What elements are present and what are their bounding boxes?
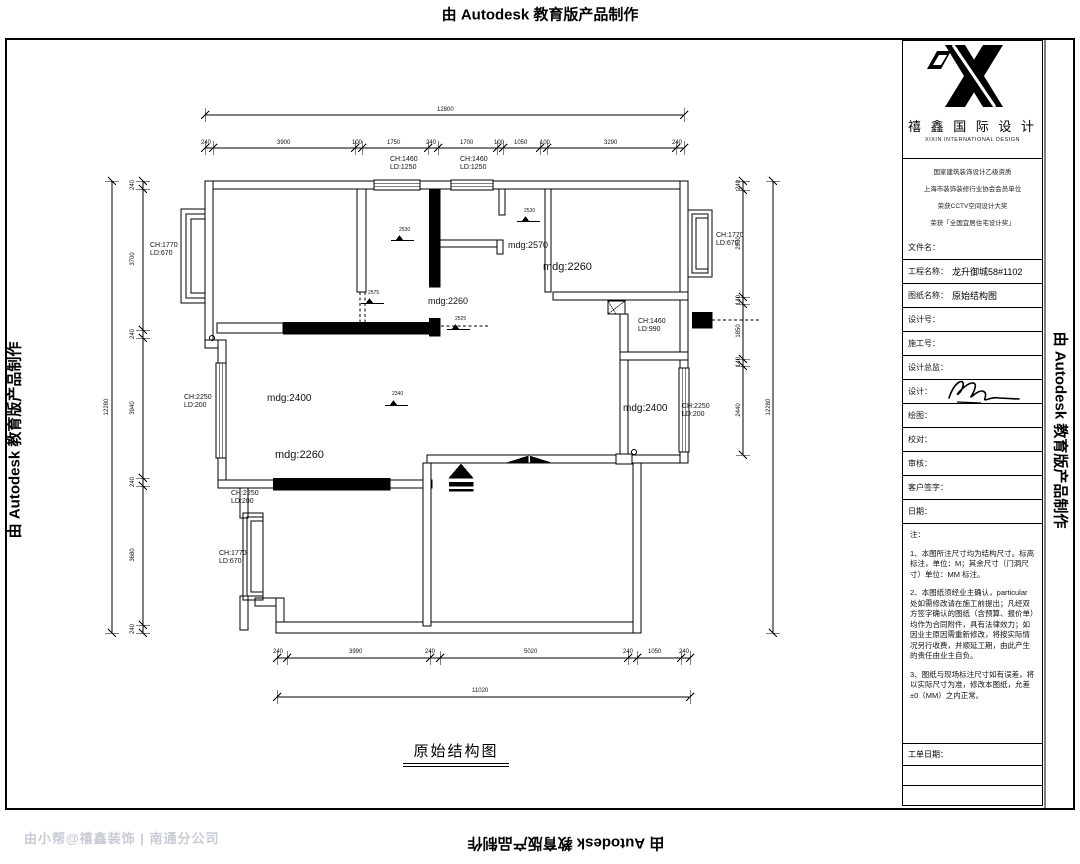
field-draftsman: 绘图：	[903, 404, 1042, 428]
drawing-title: 原始结构图	[403, 740, 509, 767]
credential-line: 荣获「全国宜居住宅设计奖」	[903, 215, 1042, 232]
designer-signature	[941, 372, 1031, 408]
field-project-name: 工程名称： 龙升御城58#1102	[903, 260, 1042, 284]
note-item: 2、本图纸须经业主确认，particular处如需修改请在施工前提出；凡经双方签…	[910, 588, 1035, 662]
field-filename: 文件名：	[903, 236, 1042, 260]
field-designer: 设计：	[903, 380, 1042, 404]
field-design-no: 设计号：	[903, 308, 1042, 332]
door-symbols	[210, 336, 637, 465]
empty-row	[903, 766, 1042, 786]
flue-symbol	[608, 301, 625, 314]
field-proofread: 校对：	[903, 428, 1042, 452]
notes-section: 注： 1、本图所注尺寸均为结构尺寸。标高标注，单位：M；其余尺寸（门洞尺寸）单位…	[903, 524, 1042, 744]
credential-line: 荣获CCTV空间设计大奖	[903, 198, 1042, 215]
company-logo-icon	[903, 41, 1042, 113]
note-item: 3、图纸与现场标注尺寸如有误差，将以实际尺寸为准，修改本图纸，允差±0（MM）之…	[910, 670, 1035, 702]
field-client-signature: 客户签字：	[903, 476, 1042, 500]
order-date-row: 工单日期：	[903, 744, 1042, 766]
bay-window-symbols	[181, 209, 712, 600]
company-name-en: XIXIN INTERNATIONAL DESIGN	[903, 137, 1042, 143]
company-logo-section: 禧 鑫 国 际 设 计 XIXIN INTERNATIONAL DESIGN	[903, 41, 1042, 159]
notes-title: 注：	[910, 530, 1035, 541]
field-review: 审核：	[903, 452, 1042, 476]
field-date: 日期：	[903, 500, 1042, 524]
credential-line: 国家建筑装饰设计乙级资质	[903, 164, 1042, 181]
window-symbols	[216, 180, 689, 458]
field-construction-no: 施工号：	[903, 332, 1042, 356]
field-drawing-name: 图纸名称： 原始结构图	[903, 284, 1042, 308]
interior-walls	[217, 189, 712, 336]
empty-row	[903, 786, 1042, 812]
title-block: 禧 鑫 国 际 设 计 XIXIN INTERNATIONAL DESIGN 国…	[902, 40, 1043, 806]
exterior-walls	[205, 181, 688, 633]
note-item: 1、本图所注尺寸均为结构尺寸。标高标注，单位：M；其余尺寸（门洞尺寸）单位：MM…	[910, 549, 1035, 581]
company-name: 禧 鑫 国 际 设 计	[903, 116, 1042, 135]
drawing-sheet: 由 Autodesk 教育版产品制作 由 Autodesk 教育版产品制作 由 …	[0, 0, 1080, 864]
credential-line: 上海市装饰装修行业协会会员单位	[903, 181, 1042, 198]
company-credentials: 国家建筑装饰设计乙级资质 上海市装饰装修行业协会会员单位 荣获CCTV空间设计大…	[903, 159, 1042, 236]
entry-arrow-icon	[449, 464, 473, 491]
